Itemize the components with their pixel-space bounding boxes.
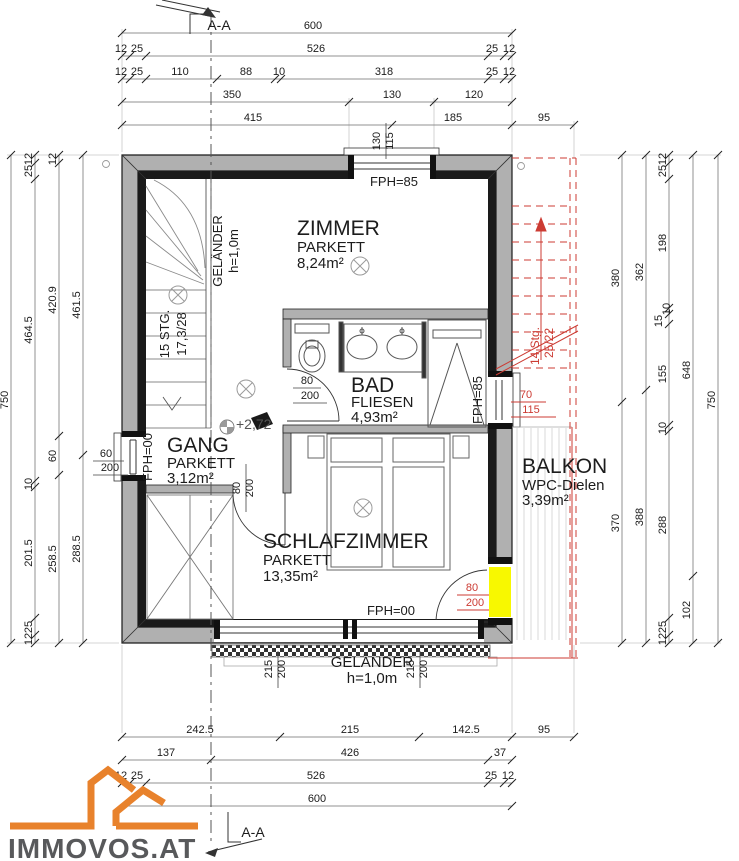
partition <box>422 322 426 378</box>
dim: 12 <box>503 43 515 55</box>
wall-bad-left-upper <box>283 319 291 367</box>
door-bad-size-h: 200 <box>301 390 319 402</box>
room-label-schlafzimmer: SCHLAFZIMMER <box>263 530 429 553</box>
dim: 25 <box>657 621 669 633</box>
level-label: +2,72 <box>236 416 272 432</box>
dim: 25 <box>23 621 35 633</box>
railing-label-stairs-2: h=1,0m <box>226 229 241 273</box>
win-bottom-left-w: 215 <box>263 660 275 678</box>
win-left-size-w: 60 <box>100 448 112 460</box>
dim: 102 <box>681 601 693 619</box>
dim: 415 <box>244 112 262 124</box>
drain-circle-icon <box>103 161 110 168</box>
fph-label-bottom: FPH=00 <box>367 603 415 618</box>
dim: 526 <box>307 770 325 782</box>
dim: 242.5 <box>186 724 214 736</box>
section-label-bottom: A-A <box>241 824 265 840</box>
dim: 95 <box>538 724 550 736</box>
dim: 370 <box>610 514 622 532</box>
dim: 120 <box>465 89 483 101</box>
room-floor-schlafzimmer: PARKETT <box>263 552 331 569</box>
door-schlaf-size-w: 80 <box>231 482 243 494</box>
dim: 10 <box>273 66 285 78</box>
dim: 110 <box>171 66 189 78</box>
dim: 60 <box>47 450 59 462</box>
win-top-size-h: 115 <box>384 132 396 150</box>
dim: 25 <box>486 43 498 55</box>
dim: 526 <box>307 43 325 55</box>
window-bottom <box>214 620 484 642</box>
balcony-door <box>487 557 513 625</box>
dim: 388 <box>634 508 646 526</box>
dim: 12 <box>47 153 59 165</box>
dim: 25 <box>486 66 498 78</box>
dim: 25 <box>485 770 497 782</box>
dim: 12 <box>502 770 514 782</box>
railing-label-bottom-1: GELÄNDER <box>331 654 414 671</box>
dim: 185 <box>444 112 462 124</box>
dim: 750 <box>0 391 11 409</box>
dim: 10 <box>661 303 673 315</box>
win-bottom-right-w: 215 <box>405 660 417 678</box>
dim: 201.5 <box>23 539 35 567</box>
room-label-balkon: BALKON <box>522 455 607 478</box>
win-bottom-right-h: 200 <box>418 660 430 678</box>
win-bottom-left-h: 200 <box>276 660 288 678</box>
stairs-label-1: 15 STG. <box>157 310 172 358</box>
railing-label-stairs-1: GELÄNDER <box>210 215 225 287</box>
floorplan-drawing: A-A A-A 600 12 25 526 25 12 12 25 110 88… <box>0 0 739 861</box>
dim: 142.5 <box>452 724 480 736</box>
dim: 750 <box>706 391 718 409</box>
section-arrow <box>205 848 218 857</box>
dim: 12 <box>503 66 515 78</box>
dim: 426 <box>341 747 359 759</box>
win-top-size-w: 130 <box>371 132 383 150</box>
dim: 25 <box>23 165 35 177</box>
dim: 12 <box>115 43 127 55</box>
dim: 10 <box>23 478 35 490</box>
dim: 95 <box>538 112 550 124</box>
dim: 12 <box>23 633 35 645</box>
dim: 137 <box>157 747 175 759</box>
dim: 25 <box>657 165 669 177</box>
dim: 600 <box>308 793 326 805</box>
balcony-door-highlight <box>489 567 511 617</box>
dim: 215 <box>341 724 359 736</box>
dim: 380 <box>610 269 622 287</box>
win-left-size-h: 200 <box>101 462 119 474</box>
dim: 12 <box>657 153 669 165</box>
dim: 155 <box>657 365 669 383</box>
door-schlaf-size-h: 200 <box>244 479 256 497</box>
railing-label-bottom-2: h=1,0m <box>347 670 397 687</box>
door-bad-size-w: 80 <box>301 375 313 387</box>
room-area-bad: 4,93m² <box>351 409 398 426</box>
partition <box>339 322 343 372</box>
dim: 350 <box>223 89 241 101</box>
room-area-gang: 3,12m² <box>167 470 214 487</box>
dim: 25 <box>131 66 143 78</box>
dim: 258.5 <box>47 545 59 573</box>
dim: 12 <box>657 633 669 645</box>
stairs-label-2: 17,3/28 <box>174 312 189 355</box>
logo-house-icon <box>116 790 164 826</box>
dim: 25 <box>131 43 143 55</box>
wall-bad-bottom <box>283 425 488 433</box>
dim: 130 <box>383 89 401 101</box>
fph-label-right: FPH=85 <box>470 376 485 424</box>
dim: 420.9 <box>47 286 59 314</box>
room-area-zimmer: 8,24m² <box>297 255 344 272</box>
dim: 12 <box>115 66 127 78</box>
dim: 288.5 <box>71 535 83 563</box>
dim: 25 <box>131 770 143 782</box>
win-right-size-h: 115 <box>522 404 540 416</box>
dim: 648 <box>681 361 693 379</box>
dim: 362 <box>634 263 646 281</box>
room-area-balkon: 3,39m² <box>522 492 569 509</box>
dim: 10 <box>657 422 669 434</box>
win-right-size-w: 70 <box>520 389 532 401</box>
dim: 15 <box>653 315 665 327</box>
dim: 88 <box>240 66 252 78</box>
logo-brand-text: IMMOVOS.AT <box>8 833 196 861</box>
door-balkon-size-w: 80 <box>466 582 478 594</box>
dim: 461.5 <box>71 291 83 319</box>
room-label-gang: GANG <box>167 434 229 457</box>
door-balkon-size-h: 200 <box>466 597 484 609</box>
wall-bad-top <box>283 309 488 319</box>
dim: 464.5 <box>23 316 35 344</box>
dim: 288 <box>657 516 669 534</box>
balcony-stairs-label-1: 14 Stg. <box>528 327 542 365</box>
wall-bad-left-lower <box>283 427 291 493</box>
section-label-top: A-A <box>207 17 231 33</box>
room-area-schlafzimmer: 13,35m² <box>263 568 318 585</box>
dim: 600 <box>304 20 322 32</box>
balcony-stairs-label-2: 25/22 <box>542 328 556 358</box>
room-floor-zimmer: PARKETT <box>297 239 365 256</box>
dim: 198 <box>657 234 669 252</box>
fph-label-top: FPH=85 <box>370 174 418 189</box>
dim: 12 <box>23 153 35 165</box>
fph-label-left: FPH=00 <box>140 433 155 481</box>
dim: 318 <box>375 66 393 78</box>
dim: 37 <box>494 747 506 759</box>
window-right <box>487 371 520 429</box>
room-label-zimmer: ZIMMER <box>297 217 380 240</box>
immovos-logo: IMMOVOS.AT <box>8 770 198 861</box>
floorplan-page: A-A A-A 600 12 25 526 25 12 12 25 110 88… <box>0 0 739 861</box>
drain-circle-icon <box>518 163 525 170</box>
